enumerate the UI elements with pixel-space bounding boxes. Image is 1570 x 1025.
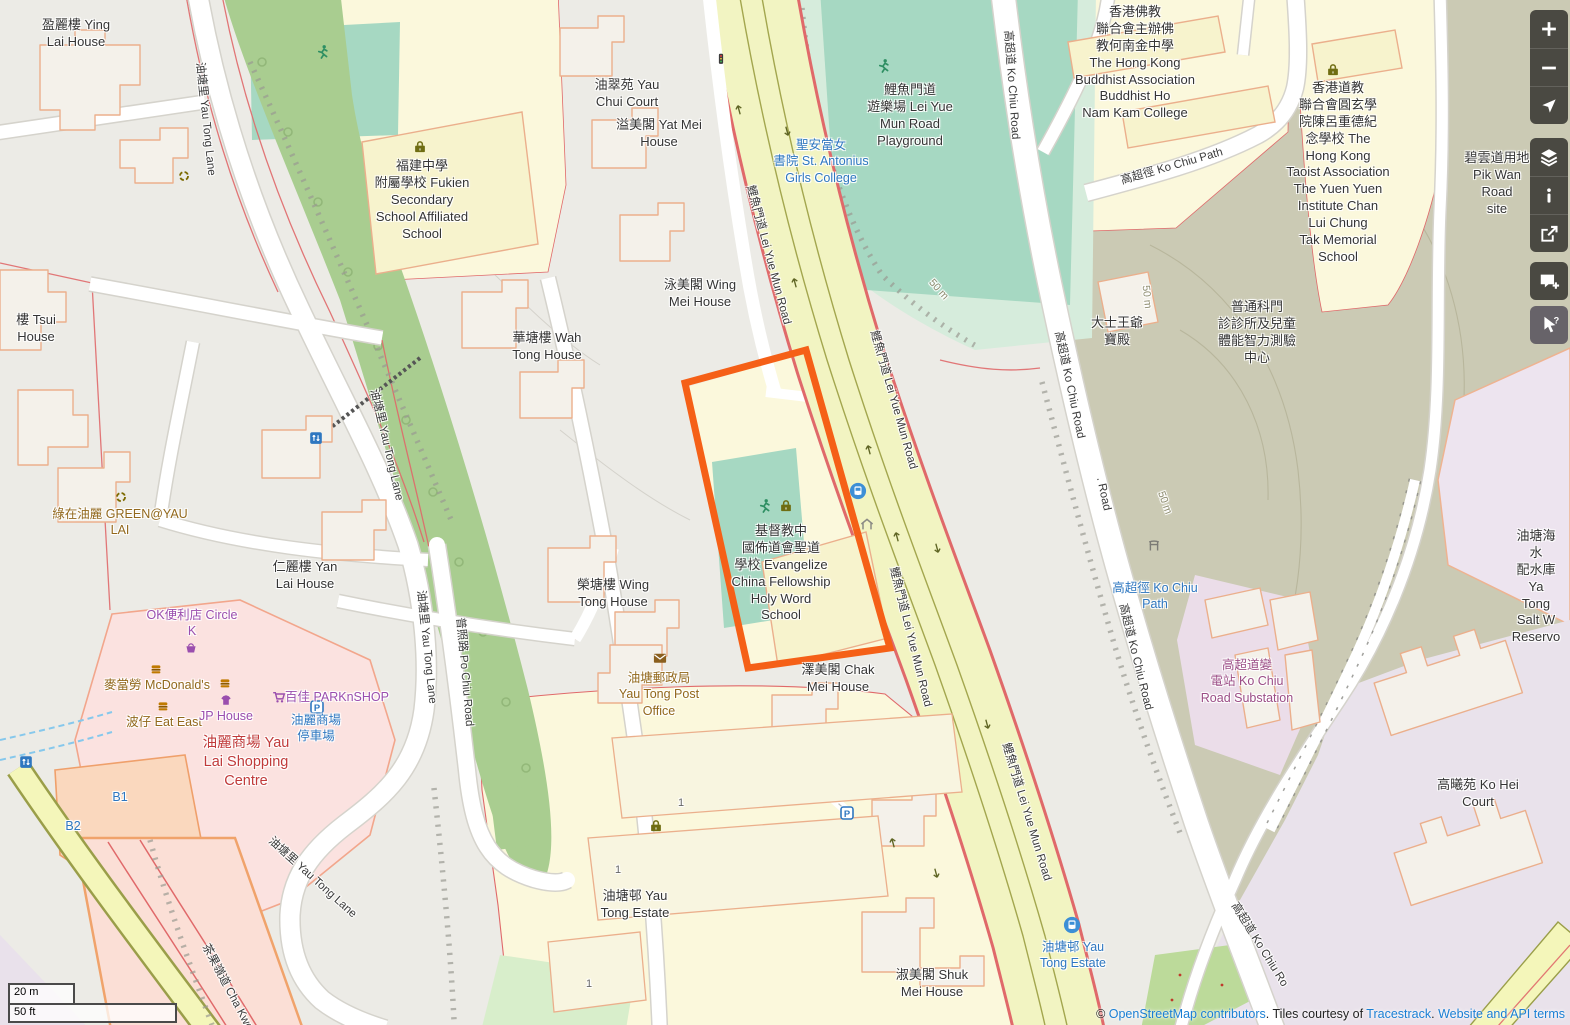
terms-link[interactable]: Website and API terms xyxy=(1438,1007,1565,1021)
note-icon xyxy=(1538,270,1560,292)
info-icon xyxy=(1539,186,1559,206)
scale-metric: 20 m xyxy=(8,983,75,1003)
query-icon: ? xyxy=(1538,314,1560,336)
control-group xyxy=(1530,138,1568,252)
attribution: © OpenStreetMap contributors. Tiles cour… xyxy=(1096,1007,1565,1021)
osm-contributors-link[interactable]: OpenStreetMap contributors xyxy=(1109,1007,1266,1021)
share-icon xyxy=(1539,224,1559,244)
scale-imperial: 50 ft xyxy=(8,1003,177,1023)
layers-icon xyxy=(1538,146,1560,168)
copyright-symbol: © xyxy=(1096,1007,1109,1021)
svg-text:?: ? xyxy=(1554,316,1560,326)
zoom-in-button[interactable] xyxy=(1530,10,1568,48)
control-group: ? xyxy=(1530,306,1568,344)
show-my-location-button[interactable] xyxy=(1530,86,1568,124)
minus-icon xyxy=(1538,57,1560,79)
map-render xyxy=(0,0,1570,1025)
map-canvas[interactable]: P ? PP 盈麗樓 Ying Lai House樓 Tsui House油翠苑… xyxy=(0,0,1570,1025)
tiles-courtesy-text: . Tiles courtesy of xyxy=(1266,1007,1367,1021)
control-group xyxy=(1530,10,1568,124)
tracestrack-link[interactable]: Tracestrack xyxy=(1366,1007,1431,1021)
share-button[interactable] xyxy=(1530,214,1568,252)
map-information-button[interactable] xyxy=(1530,176,1568,214)
map-controls: ? xyxy=(1530,10,1568,344)
locate-icon xyxy=(1539,96,1559,116)
zoom-out-button[interactable] xyxy=(1530,48,1568,86)
scale-bar: 20 m 50 ft xyxy=(8,983,177,1023)
add-note-button[interactable] xyxy=(1530,262,1568,300)
control-group xyxy=(1530,262,1568,300)
plus-icon xyxy=(1538,18,1560,40)
query-features-button[interactable]: ? xyxy=(1530,306,1568,344)
layers-button[interactable] xyxy=(1530,138,1568,176)
